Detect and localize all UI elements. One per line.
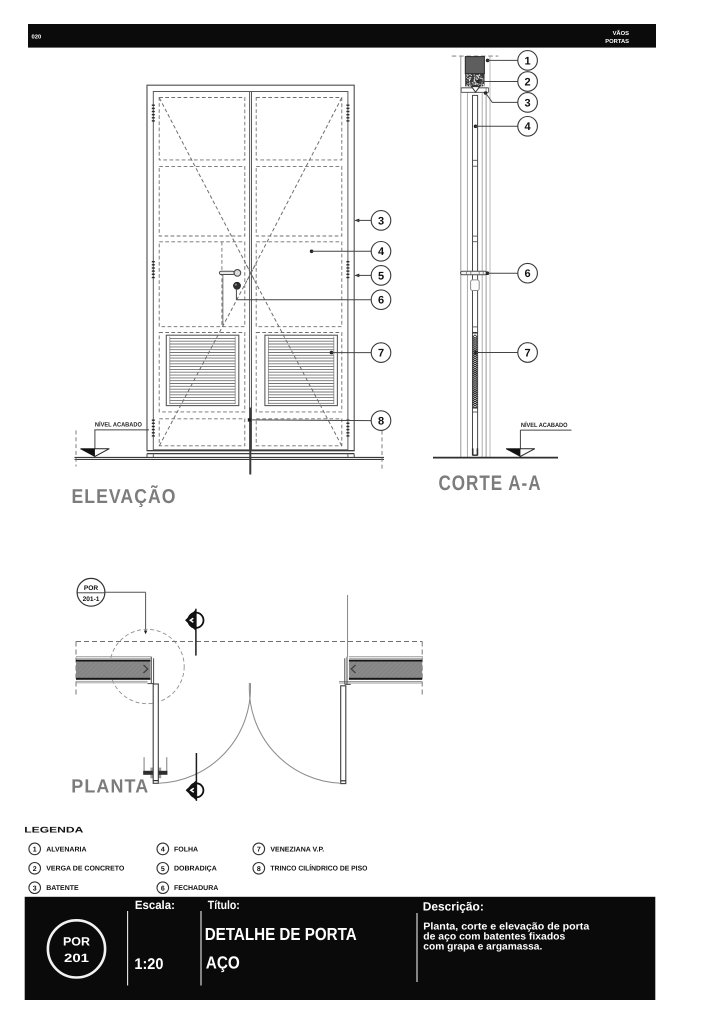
- svg-text:201: 201: [64, 951, 89, 965]
- svg-text:8: 8: [378, 416, 384, 428]
- svg-text:CORTE A-A: CORTE A-A: [439, 472, 542, 495]
- svg-text:7: 7: [525, 347, 531, 359]
- svg-text:7: 7: [378, 348, 384, 360]
- svg-text:7: 7: [257, 847, 261, 854]
- svg-text:2: 2: [525, 76, 531, 88]
- svg-text:201-1: 201-1: [83, 596, 100, 603]
- svg-text:4: 4: [525, 121, 532, 133]
- svg-text:1: 1: [525, 55, 531, 67]
- svg-text:ELEVAÇÃO: ELEVAÇÃO: [72, 485, 177, 508]
- svg-text:NÍVEL ACABADO: NÍVEL ACABADO: [95, 421, 142, 429]
- svg-text:com grapa e argamassa.: com grapa e argamassa.: [423, 942, 542, 953]
- svg-text:020: 020: [32, 34, 42, 41]
- svg-text:VÃOS: VÃOS: [613, 29, 630, 37]
- svg-text:DOBRADIÇA: DOBRADIÇA: [174, 866, 217, 873]
- svg-text:POR: POR: [63, 935, 90, 949]
- svg-text:4: 4: [161, 847, 165, 854]
- svg-text:8: 8: [257, 866, 261, 873]
- svg-text:FOLHA: FOLHA: [174, 846, 198, 853]
- svg-text:NÍVEL ACABADO: NÍVEL ACABADO: [521, 421, 568, 429]
- svg-text:6: 6: [525, 268, 531, 280]
- svg-text:1: 1: [33, 847, 37, 854]
- svg-text:ALVENARIA: ALVENARIA: [46, 846, 86, 853]
- svg-text:3: 3: [33, 885, 37, 892]
- svg-text:Título:: Título:: [208, 898, 240, 912]
- svg-text:1:20: 1:20: [134, 956, 163, 973]
- svg-text:PORTAS: PORTAS: [605, 38, 629, 45]
- svg-text:DETALHE DE PORTA: DETALHE DE PORTA: [205, 924, 357, 944]
- svg-text:2: 2: [33, 866, 37, 873]
- svg-text:FECHADURA: FECHADURA: [174, 885, 218, 892]
- svg-text:VERGA DE CONCRETO: VERGA DE CONCRETO: [46, 866, 125, 873]
- svg-text:4: 4: [378, 246, 385, 258]
- svg-text:3: 3: [525, 97, 531, 109]
- svg-text:PLANTA: PLANTA: [71, 776, 149, 797]
- svg-text:BATENTE: BATENTE: [46, 885, 79, 892]
- svg-text:5: 5: [161, 866, 165, 873]
- svg-text:5: 5: [378, 270, 384, 282]
- svg-text:POR: POR: [84, 585, 99, 592]
- svg-text:VENEZIANA V.P.: VENEZIANA V.P.: [270, 846, 324, 853]
- svg-text:6: 6: [161, 885, 165, 892]
- svg-text:Escala:: Escala:: [135, 898, 175, 912]
- svg-text:3: 3: [378, 215, 384, 227]
- svg-text:Descrição:: Descrição:: [423, 900, 484, 914]
- svg-text:6: 6: [378, 295, 384, 307]
- svg-text:TRINCO CILÍNDRICO DE PISO: TRINCO CILÍNDRICO DE PISO: [270, 864, 368, 873]
- svg-text:AÇO: AÇO: [206, 953, 240, 973]
- svg-text:LEGENDA: LEGENDA: [24, 826, 83, 835]
